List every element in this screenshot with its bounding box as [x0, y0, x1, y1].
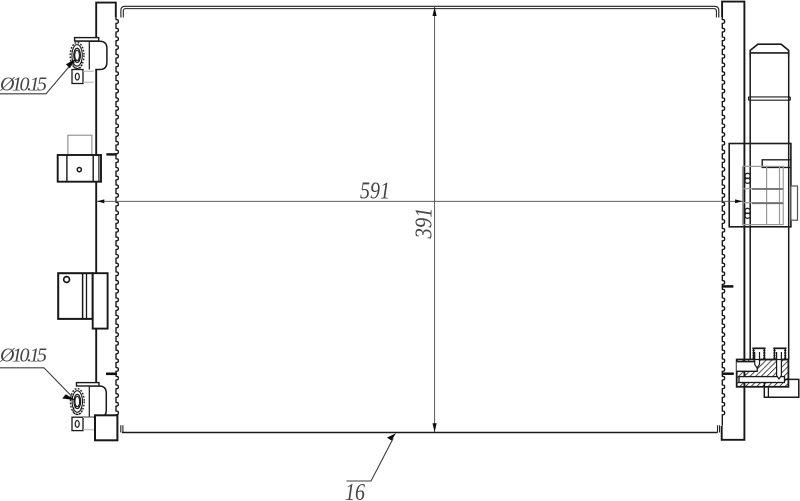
svg-text:591: 591 — [360, 179, 390, 205]
svg-text:Ø10.15: Ø10.15 — [0, 345, 47, 367]
svg-text:Ø10.15: Ø10.15 — [0, 74, 47, 96]
svg-text:16: 16 — [345, 480, 365, 501]
svg-text:391: 391 — [412, 208, 438, 240]
